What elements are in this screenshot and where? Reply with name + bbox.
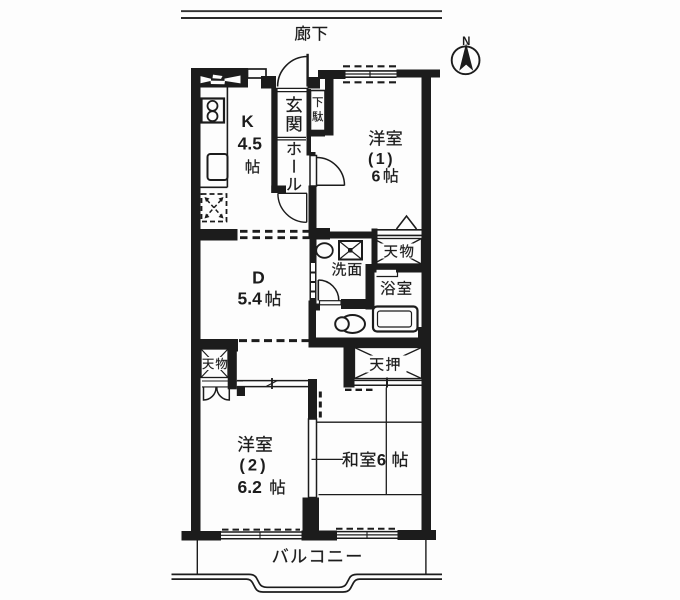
svg-text:6: 6 — [372, 169, 381, 186]
svg-text:(2): (2) — [239, 457, 268, 475]
svg-text:N: N — [462, 36, 470, 48]
svg-text:6: 6 — [377, 452, 386, 470]
svg-text:D: D — [252, 268, 265, 288]
svg-text:4.5: 4.5 — [238, 134, 263, 154]
svg-text:5.4: 5.4 — [238, 289, 263, 309]
svg-text:K: K — [241, 112, 254, 131]
svg-text:(1): (1) — [368, 151, 395, 168]
svg-text:6.2: 6.2 — [238, 477, 263, 497]
